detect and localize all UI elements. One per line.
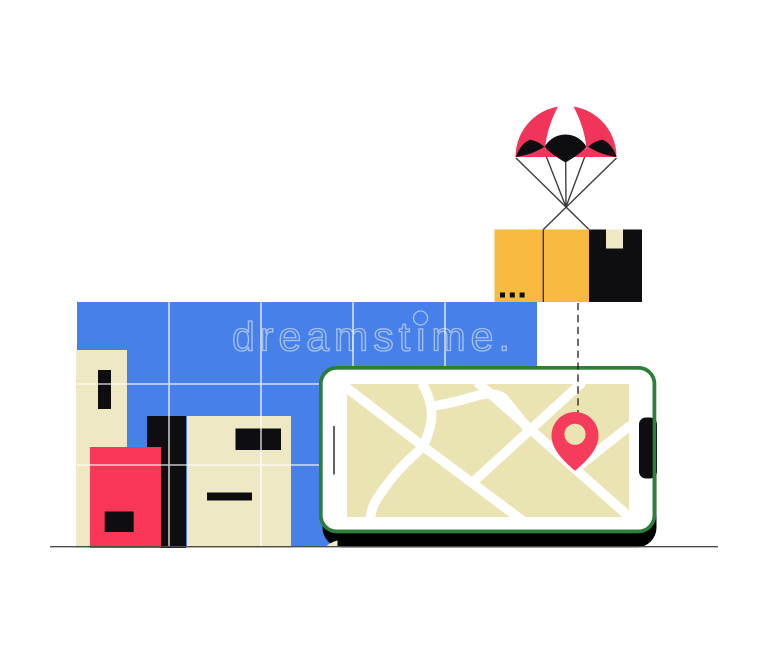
svg-text:dreamstıme.: dreamstıme.: [232, 314, 515, 360]
